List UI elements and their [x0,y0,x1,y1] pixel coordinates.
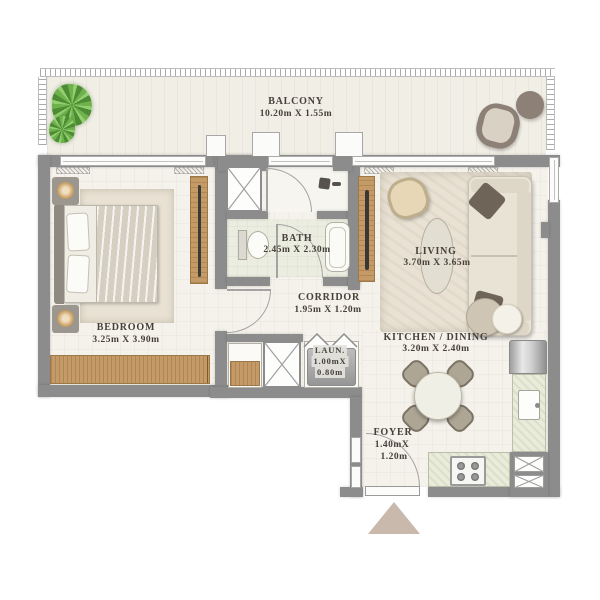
duct-shaft-upper [226,166,262,212]
tv [365,190,369,270]
service-box-1 [514,456,544,472]
lamp-icon [57,182,74,199]
shaft-wall-block-b [333,155,352,171]
wall-column-bump [541,222,549,238]
corridor-label: CORRIDOR [298,293,360,303]
toilet [238,230,247,260]
bed-duvet [96,205,158,303]
bedroom-wardrobe-side [190,176,208,284]
balcony-door-jamb-1 [206,135,226,156]
stove [450,456,486,486]
sofa-backrest [517,191,531,321]
balcony-side-table [516,91,544,119]
bedroom-wall-bottom [38,385,230,397]
bed-pillow-2 [66,254,90,293]
living-window [352,156,495,166]
living-window-right [549,157,559,203]
nightstand-top [52,177,79,205]
lounge-chair-cushion [480,106,517,145]
foyer-dims-2: 1.20m [380,453,407,463]
bath-dims: 2.45m X 2.30m [263,246,330,256]
bathtub-inner [329,227,346,268]
burner-icon [457,462,465,470]
bedroom-window [60,156,206,166]
foyer-label: FOYER [374,428,413,438]
duct-shaft-lower [263,341,301,388]
living-label: LIVING [415,247,456,257]
shower-wall-bottom-left [227,211,268,219]
burner-icon [471,473,479,481]
curtain-symbol-2 [174,167,204,174]
laundry-dims-1: 1.00mX [312,356,349,367]
corridor-closet-shelf [230,361,260,386]
sofa-seat-divider [471,255,517,257]
coffee-table-small [492,304,522,334]
tv-unit [358,176,375,282]
center-window [268,156,333,166]
burner-icon [471,462,479,470]
balcony-door-jamb-3 [335,132,363,156]
nightstand-bottom [52,305,79,333]
plant-icon-small [49,116,75,143]
kitchen-dining-label: KITCHEN / DINING [383,333,488,343]
dining-table [414,372,462,420]
balcony-dims: 10.20m X 1.55m [260,110,332,120]
wardrobe-rail [198,185,201,277]
foyer-dims-1: 1.40mX [375,441,409,451]
entrance-marker-triangle [368,502,420,534]
kitchen-dining-dims: 3.20m X 2.40m [402,345,469,355]
burner-icon [457,473,465,481]
wardrobe-divider [207,356,208,383]
corridor-dims: 1.95m X 1.20m [294,306,361,316]
curtain-symbol-1 [56,167,90,174]
shower-door-leaf [266,168,268,212]
bedroom-label: BEDROOM [97,323,155,333]
laundry-label: LAUN. [313,345,347,356]
service-box-2 [514,475,544,488]
balcony-hatch-left [38,77,47,145]
lamp-icon [57,310,74,327]
outer-wall-bottom-left [340,487,363,497]
bedroom-door-leaf [227,289,271,291]
shower-head-icon [318,177,330,189]
outer-wall-right [548,200,560,497]
foyer-niche-2 [351,466,361,488]
living-dims: 3.70m X 3.65m [403,259,470,269]
balcony-hatch-right [546,77,555,150]
floorplan: BALCONY 10.20m X 1.55m BEDROOM 3.25m X 3… [0,0,600,600]
fridge [509,340,547,374]
outer-wall-left [38,155,50,397]
laundry-dims-2: 0.80m [315,367,345,378]
bed-headboard [54,204,64,304]
bath-wall-bottom-left [227,277,270,286]
shower-valve-icon [332,182,341,186]
bath-label: BATH [282,234,313,244]
balcony-hatch-top [40,68,555,77]
center-wall-bottom [210,387,362,398]
bedroom-wardrobe-bottom [50,355,210,384]
kitchen-sink [518,390,540,420]
bed-pillow-1 [66,212,90,251]
bedroom-dims: 3.25m X 3.90m [92,336,159,346]
foyer-niche-1 [351,437,361,463]
entry-door-leaf [365,486,420,496]
balcony-door-jamb-2 [252,132,280,156]
balcony-label: BALCONY [268,97,324,107]
faucet-icon [535,403,540,408]
